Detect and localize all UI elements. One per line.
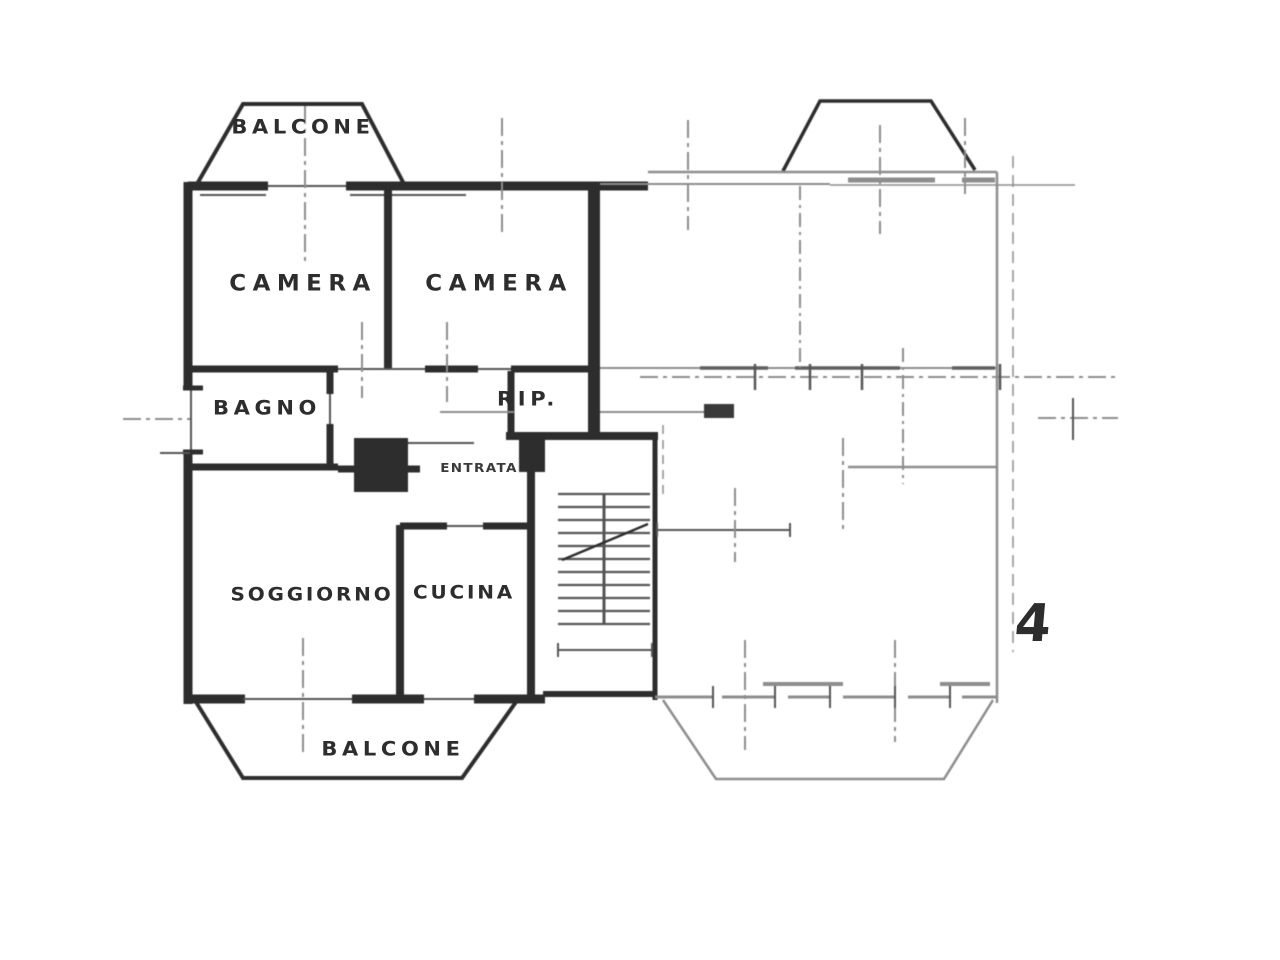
room-label-balcone-bottom: BALCONE <box>321 738 464 761</box>
room-label-bagno: BAGNO <box>213 397 321 420</box>
room-label-soggiorno: SOGGIORNO <box>230 583 393 606</box>
room-label-rip: RIP. <box>497 388 559 411</box>
room-label-camera-right: CAMERA <box>425 272 572 297</box>
floor-number-annotation: 4 <box>1012 594 1053 654</box>
room-label-entrata: ENTRATA <box>440 460 518 475</box>
room-label-cucina: CUCINA <box>413 581 515 604</box>
room-label-camera-left: CAMERA <box>229 272 376 297</box>
room-labels-layer: BALCONE CAMERA CAMERA BAGNO RIP. ENTRATA… <box>0 0 1280 960</box>
room-label-balcone-top: BALCONE <box>231 116 374 139</box>
floorplan-page: BALCONE CAMERA CAMERA BAGNO RIP. ENTRATA… <box>0 0 1280 960</box>
